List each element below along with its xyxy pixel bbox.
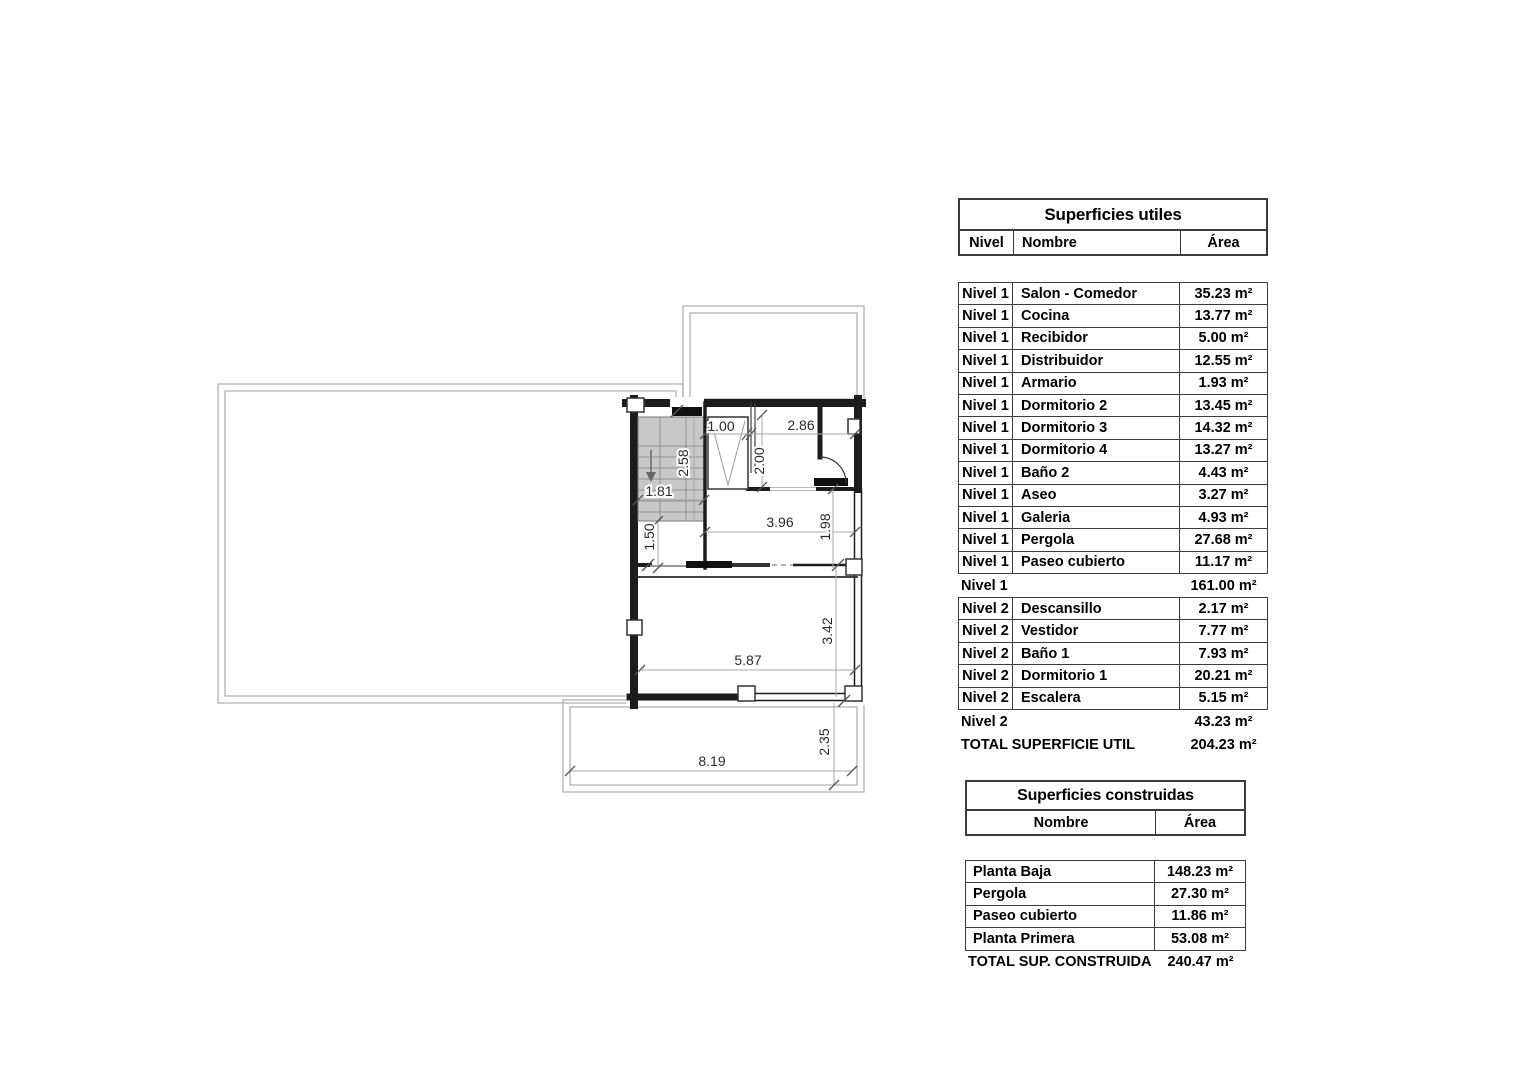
- dimension-label: 3.42: [819, 617, 835, 644]
- dimension-label: 3.96: [766, 514, 793, 530]
- header-nombre: Nombre: [967, 811, 1156, 834]
- header-area: Área: [1181, 231, 1266, 254]
- dimension-label: 2.86: [787, 417, 814, 433]
- dimension-label: 1.00: [707, 418, 734, 434]
- table-row: Nivel 1Baño 24.43 m²: [959, 461, 1267, 483]
- drawing-sheet: 1.00 2.86 2.00 2.58 1.81 3.96: [0, 0, 1528, 1080]
- nivel2-rows: Nivel 2Descansillo2.17 m² Nivel 2Vestido…: [958, 597, 1268, 710]
- dimension-label: 1.50: [641, 523, 657, 550]
- dimension-label: 1.81: [645, 483, 672, 499]
- table-row: Nivel 1Dormitorio 314.32 m²: [959, 416, 1267, 438]
- table-row: Nivel 1Aseo3.27 m²: [959, 484, 1267, 506]
- table-row: Nivel 1Cocina13.77 m²: [959, 304, 1267, 326]
- superficies-construidas-table: Superficies construidas Nombre Área Plan…: [965, 780, 1246, 974]
- dimension-label: 2.00: [751, 447, 767, 474]
- dimension-label: 2.58: [675, 449, 691, 476]
- table-row: Nivel 1Pergola27.68 m²: [959, 528, 1267, 550]
- nivel1-subtotal-row: Nivel 1 161.00 m²: [958, 574, 1268, 597]
- table-row: Nivel 1Paseo cubierto11.17 m²: [959, 551, 1267, 573]
- table-title: Superficies construidas: [965, 780, 1246, 811]
- table-row: Nivel 1Dormitorio 213.45 m²: [959, 394, 1267, 416]
- total-construida-row: TOTAL SUP. CONSTRUIDA 240.47 m²: [965, 951, 1246, 974]
- nivel2-subtotal-row: Nivel 2 43.23 m²: [958, 710, 1268, 733]
- table-row: Nivel 1Distribuidor12.55 m²: [959, 349, 1267, 371]
- table-row: Nivel 1Dormitorio 413.27 m²: [959, 439, 1267, 461]
- dimension-label: 8.19: [698, 753, 725, 769]
- dimension-label: 1.98: [817, 513, 833, 540]
- table-header: Nombre Área: [965, 811, 1246, 836]
- header-nombre: Nombre: [1014, 231, 1181, 254]
- header-area: Área: [1156, 811, 1244, 834]
- construidas-rows: Planta Baja148.23 m² Pergola27.30 m² Pas…: [965, 860, 1246, 951]
- table-row: Pergola27.30 m²: [966, 882, 1245, 904]
- dimension-label: 2.35: [816, 728, 832, 755]
- table-row: Nivel 2Dormitorio 120.21 m²: [959, 664, 1267, 686]
- table-row: Planta Baja148.23 m²: [966, 861, 1245, 882]
- table-row: Nivel 2Escalera5.15 m²: [959, 687, 1267, 709]
- nivel1-rows: Nivel 1Salon - Comedor35.23 m² Nivel 1Co…: [958, 282, 1268, 574]
- table-row: Paseo cubierto11.86 m²: [966, 905, 1245, 927]
- table-title: Superficies utiles: [958, 198, 1268, 231]
- dimension-terrace-depth: 2.35: [816, 703, 839, 790]
- table-row: Nivel 1Salon - Comedor35.23 m²: [959, 283, 1267, 304]
- floor-plan: 1.00 2.86 2.00 2.58 1.81 3.96: [0, 0, 1528, 1080]
- table-row: Planta Primera53.08 m²: [966, 927, 1245, 949]
- table-row: Nivel 1Galeria4.93 m²: [959, 506, 1267, 528]
- left-terrace-outline: [218, 384, 683, 703]
- upper-terrace-outline: [683, 306, 864, 403]
- table-row: Nivel 2Baño 17.93 m²: [959, 642, 1267, 664]
- dimension-terrace-width: 8.19: [565, 753, 857, 776]
- superficies-utiles-table: Superficies utiles Nivel Nombre Área Niv…: [958, 198, 1268, 756]
- table-row: Nivel 2Vestidor7.77 m²: [959, 619, 1267, 641]
- table-header: Nivel Nombre Área: [958, 231, 1268, 256]
- table-row: Nivel 1Armario1.93 m²: [959, 372, 1267, 394]
- header-nivel: Nivel: [960, 231, 1014, 254]
- table-row: Nivel 1Recibidor5.00 m²: [959, 327, 1267, 349]
- sliding-door-panel: [686, 561, 732, 568]
- dimension-label: 5.87: [734, 652, 761, 668]
- table-row: Nivel 2Descansillo2.17 m²: [959, 598, 1267, 619]
- total-util-row: TOTAL SUPERFICIE UTIL 204.23 m²: [958, 733, 1268, 756]
